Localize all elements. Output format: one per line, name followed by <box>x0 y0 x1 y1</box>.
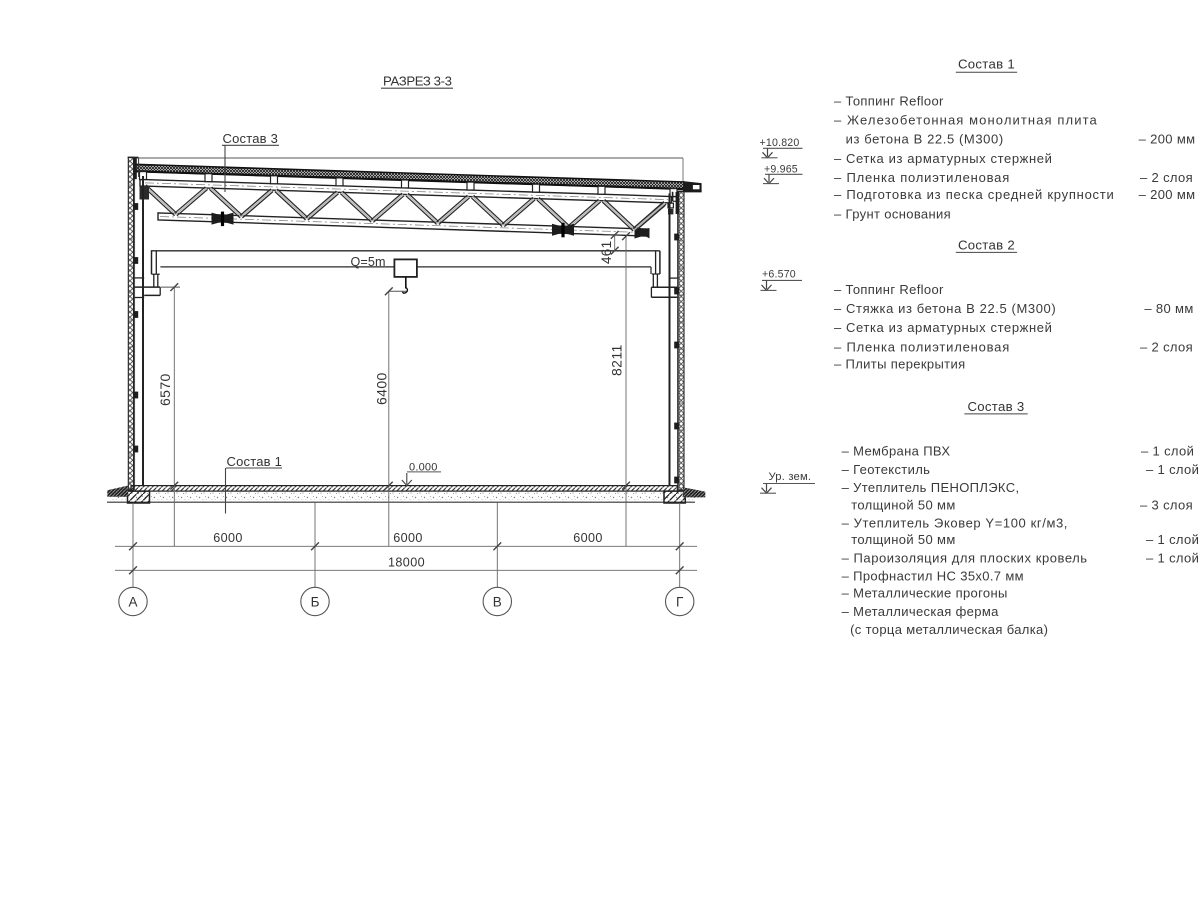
svg-text:– 2 слоя: – 2 слоя <box>1140 170 1193 185</box>
svg-text:– 1 слой: – 1 слой <box>1141 444 1194 459</box>
svg-text:А: А <box>128 594 137 609</box>
svg-text:из бетона В 22.5 (М300): из бетона В 22.5 (М300) <box>846 132 1004 147</box>
svg-text:– Топпинг Refloor: – Топпинг Refloor <box>834 93 944 108</box>
svg-text:Состав 3: Состав 3 <box>967 399 1024 414</box>
svg-text:Состав 3: Состав 3 <box>223 131 279 146</box>
svg-text:– Топпинг Refloor: – Топпинг Refloor <box>834 282 944 297</box>
svg-text:461: 461 <box>599 241 614 264</box>
svg-text:– Грунт основания: – Грунт основания <box>834 206 951 221</box>
svg-text:– Сетка из арматурных стержней: – Сетка из арматурных стержней <box>834 320 1052 335</box>
svg-text:6400: 6400 <box>374 372 390 405</box>
svg-text:– Геотекстиль: – Геотекстиль <box>842 462 931 477</box>
svg-text:18000: 18000 <box>388 555 425 569</box>
svg-text:Г: Г <box>676 594 684 609</box>
svg-text:– Плиты перекрытия: – Плиты перекрытия <box>834 357 966 372</box>
svg-text:– Пленка полиэтиленовая: – Пленка полиэтиленовая <box>834 170 1010 185</box>
svg-text:(с торца металлическая балка): (с торца металлическая балка) <box>850 622 1048 637</box>
svg-text:Состав 2: Состав 2 <box>958 238 1015 253</box>
svg-text:толщиной 50 мм: толщиной 50 мм <box>851 497 955 512</box>
svg-text:+10.820: +10.820 <box>760 137 800 149</box>
svg-text:– Подготовка из песка средней: – Подготовка из песка средней крупности <box>834 187 1115 202</box>
svg-text:В: В <box>493 594 502 609</box>
svg-text:– Пароизоляция для плоских кро: – Пароизоляция для плоских кровель <box>842 550 1088 565</box>
svg-text:– 1 слой: – 1 слой <box>1146 550 1199 565</box>
svg-text:– 1 слой: – 1 слой <box>1146 532 1199 547</box>
svg-text:– Железобетонная монолитная п: – Железобетонная монолитная плита <box>834 112 1098 127</box>
svg-text:Состав 1: Состав 1 <box>227 454 283 469</box>
svg-text:Состав 1: Состав 1 <box>958 56 1015 71</box>
svg-text:– 1 слой: – 1 слой <box>1146 462 1199 477</box>
svg-text:РАЗРЕЗ 3-3: РАЗРЕЗ 3-3 <box>383 73 452 88</box>
svg-text:– Стяжка из бетона В 22.5 (М30: – Стяжка из бетона В 22.5 (М300) <box>834 301 1056 316</box>
svg-text:– Утеплитель ПЕНОПЛЭКС,: – Утеплитель ПЕНОПЛЭКС, <box>842 480 1020 495</box>
svg-text:толщиной 50 мм: толщиной 50 мм <box>851 532 955 547</box>
svg-text:– 2 слоя: – 2 слоя <box>1140 339 1193 354</box>
svg-text:– Металлическая ферма: – Металлическая ферма <box>842 604 1000 619</box>
svg-text:+6.570: +6.570 <box>762 268 796 280</box>
svg-text:– Мембрана ПВХ: – Мембрана ПВХ <box>842 444 951 459</box>
svg-text:8211: 8211 <box>609 344 625 376</box>
svg-text:– 200 мм: – 200 мм <box>1139 132 1196 147</box>
svg-text:– 3 слоя: – 3 слоя <box>1140 497 1193 512</box>
svg-text:– Профнастил НС 35х0.7 мм: – Профнастил НС 35х0.7 мм <box>842 568 1024 583</box>
svg-text:6000: 6000 <box>393 531 423 545</box>
svg-text:Б: Б <box>311 594 320 609</box>
svg-text:6000: 6000 <box>573 531 603 545</box>
svg-text:6570: 6570 <box>157 373 173 406</box>
svg-text:– Утеплитель Эковер Y=100 кг/м: – Утеплитель Эковер Y=100 кг/м3, <box>842 515 1068 530</box>
svg-text:6000: 6000 <box>213 531 243 545</box>
svg-text:– Сетка из арматурных стержней: – Сетка из арматурных стержней <box>834 151 1052 166</box>
svg-text:– Металлические прогоны: – Металлические прогоны <box>842 586 1008 601</box>
svg-text:– Пленка полиэтиленовая: – Пленка полиэтиленовая <box>834 339 1010 354</box>
svg-text:Ур. зем.: Ур. зем. <box>769 471 812 483</box>
svg-text:– 80 мм: – 80 мм <box>1144 301 1193 316</box>
svg-text:– 200 мм: – 200 мм <box>1139 187 1196 202</box>
svg-text:Q=5m: Q=5m <box>351 255 386 269</box>
